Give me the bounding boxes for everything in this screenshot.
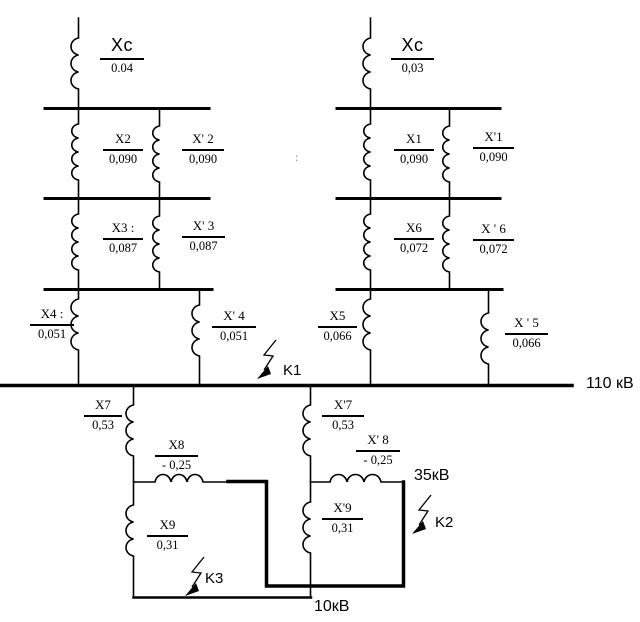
reactance-x3p: X' 3 0,087 [182,219,225,253]
link-35kv-box [228,482,404,587]
reactance-value: 0,072 [479,243,507,256]
voltage-label-10kv: 10кВ [314,598,349,616]
reactance-value: 0,066 [512,337,540,350]
fraction-bar [318,326,357,328]
reactance-x2p: X' 2 0,090 [182,132,224,166]
reactance-value: - 0,25 [162,459,191,472]
reactance-x6p: X ' 6 0,072 [473,222,514,256]
reactance-value: 0,090 [479,151,507,164]
reactance-x1p: X'1 0,090 [473,130,514,164]
fraction-bar [30,324,74,326]
reactance-label: X'9 [333,501,351,515]
reactance-x1: X1 0,090 [394,132,434,166]
reactance-x5: X5 0,066 [318,309,357,343]
reactance-xc-left: Xc 0.04 [100,36,144,76]
reactance-xc-right: Xc 0,03 [391,36,434,76]
coil-xc-left [71,18,79,108]
fault-label-k1: K1 [283,362,301,379]
coil-x6p [443,198,450,289]
fraction-bar [84,415,122,417]
fault-label-k3: K3 [205,570,223,587]
reactance-value: 0,051 [220,330,248,343]
reactance-value: 0,090 [109,153,137,166]
coil-x5 [363,289,371,385]
reactance-value: 0,072 [400,242,428,255]
reactance-value: 0,066 [323,330,351,343]
coil-x3p [153,198,160,289]
reactance-label: X4 : [41,307,64,321]
reactance-label: X ' 6 [481,222,506,236]
coil-x6 [364,198,371,289]
reactance-label: Xc [111,36,133,55]
fraction-bar [473,147,514,149]
fraction-bar [356,450,400,452]
reactance-label: X6 [406,221,422,235]
coil-xc-right [363,18,371,108]
fraction-bar [212,326,256,328]
reactance-x7: X7 0,53 [84,398,122,432]
fault-label-k2: K2 [435,514,453,531]
reactance-value: 0,087 [109,242,137,255]
fraction-bar [394,238,434,240]
reactance-value: 0,03 [402,62,424,75]
reactance-value: 0,087 [189,240,217,253]
fault-arrow-k3 [185,557,204,596]
fraction-bar [182,236,225,238]
reactance-x5p: X ' 5 0,066 [505,316,548,350]
reactance-x8: X8 - 0,25 [155,438,198,472]
reactance-x3: X3 : 0,087 [103,221,143,255]
reactance-value: 0,090 [189,153,217,166]
reactance-value: 0,53 [92,419,114,432]
reactance-label: X2 [115,132,131,146]
fraction-bar [394,149,434,151]
fraction-bar [182,149,224,151]
fraction-bar [155,455,198,457]
coil-x4p [192,289,200,385]
reactance-label: X'1 [484,130,502,144]
reactance-x2: X2 0,090 [103,132,143,166]
reactance-value: 0,53 [332,419,354,432]
voltage-label-35kv: 35кВ [414,467,449,485]
impedance-diagram: Xc 0.04 X2 0,090 X' 2 0,090 X3 : 0,087 X… [0,0,640,622]
fault-arrow-k1 [257,340,276,379]
reactance-label: X' 8 [367,433,388,447]
reactance-value: 0,31 [332,522,354,535]
reactance-value: - 0,25 [363,454,392,467]
reactance-label: X5 [330,309,346,323]
coil-x2p [153,108,160,198]
reactance-x4p: X' 4 0,051 [212,309,256,343]
reactance-label: X8 [169,438,185,452]
reactance-label: X9 [160,518,176,532]
coil-x3 [72,198,79,289]
fraction-bar [322,415,364,417]
scan-artifact-colon: : [295,150,298,165]
reactance-x9p: X'9 0,31 [322,501,363,535]
reactance-label: X'7 [334,398,352,412]
fraction-bar [147,535,188,537]
fraction-bar [473,239,514,241]
fraction-bar [391,58,434,61]
reactance-x4: X4 : 0,051 [30,307,74,341]
coil-x2 [72,108,79,198]
reactance-x8p: X' 8 - 0,25 [356,433,400,467]
reactance-x7p: X'7 0,53 [322,398,364,432]
voltage-label-110kv: 110 кВ [586,375,634,393]
reactance-label: Xc [401,36,423,55]
reactance-label: X ' 5 [514,316,539,330]
coil-x5p [481,289,489,385]
fraction-bar [322,518,363,520]
reactance-label: X' 4 [223,309,244,323]
reactance-label: X1 [406,132,422,146]
coil-x1 [364,108,371,198]
fraction-bar [103,238,143,240]
reactance-label: X7 [95,398,111,412]
reactance-label: X3 : [112,221,135,235]
fraction-bar [505,333,548,335]
reactance-value: 0.04 [111,62,133,75]
coil-x1p [443,108,450,198]
reactance-value: 0,051 [38,328,66,341]
reactance-value: 0,31 [157,539,179,552]
fraction-bar [103,149,143,151]
fault-arrow-k2 [412,495,431,534]
coil-x7p-x9p-branch [303,385,311,597]
reactance-value: 0,090 [400,153,428,166]
reactance-label: X' 2 [192,132,213,146]
reactance-label: X' 3 [193,219,214,233]
coil-x8 [134,475,229,483]
reactance-x9: X9 0,31 [147,518,188,552]
coil-x8p [311,475,405,483]
reactance-x6: X6 0,072 [394,221,434,255]
fraction-bar [100,58,144,61]
coil-x7-x9-branch [126,385,134,597]
